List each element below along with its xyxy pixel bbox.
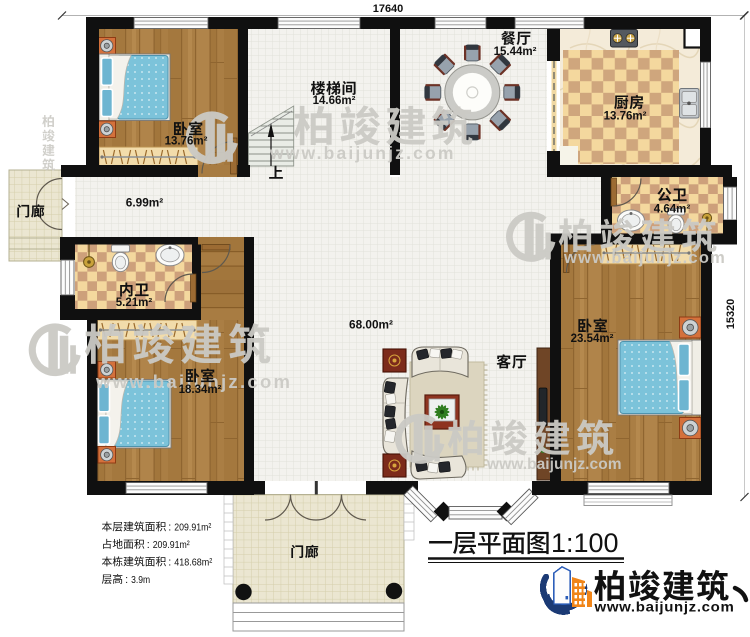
svg-text:www.baijunjz.com: www.baijunjz.com <box>563 249 726 267</box>
svg-text:15.44m²: 15.44m² <box>494 46 537 58</box>
svg-text:18.34m²: 18.34m² <box>179 384 222 396</box>
svg-text:14.66m²: 14.66m² <box>313 95 356 107</box>
svg-text:4.64m²: 4.64m² <box>654 204 691 216</box>
svg-text:1:100: 1:100 <box>551 528 619 558</box>
svg-text:17640: 17640 <box>373 3 404 15</box>
svg-text::: : <box>168 522 171 534</box>
svg-text:15320: 15320 <box>725 299 737 330</box>
svg-text:209.91m²: 209.91m² <box>174 522 211 534</box>
svg-text:68.00m²: 68.00m² <box>349 318 393 332</box>
svg-text:23.54m²: 23.54m² <box>571 333 614 345</box>
svg-text:www.baijunjz.com: www.baijunjz.com <box>269 143 455 163</box>
svg-text::: : <box>125 574 128 586</box>
svg-text:3.9m: 3.9m <box>131 574 150 586</box>
svg-text:5.21m²: 5.21m² <box>116 297 153 309</box>
svg-text::: : <box>168 557 171 569</box>
svg-text::: : <box>147 539 150 551</box>
svg-text:209.91m²: 209.91m² <box>153 539 190 551</box>
svg-text:13.76m²: 13.76m² <box>165 136 208 148</box>
svg-text:www.baijunjz.com: www.baijunjz.com <box>593 600 734 615</box>
svg-text:13.76m²: 13.76m² <box>604 111 647 123</box>
svg-text:6.99m²: 6.99m² <box>126 196 163 210</box>
svg-text:www.baijunjz.com: www.baijunjz.com <box>486 456 622 473</box>
svg-text:418.68m²: 418.68m² <box>174 557 212 569</box>
